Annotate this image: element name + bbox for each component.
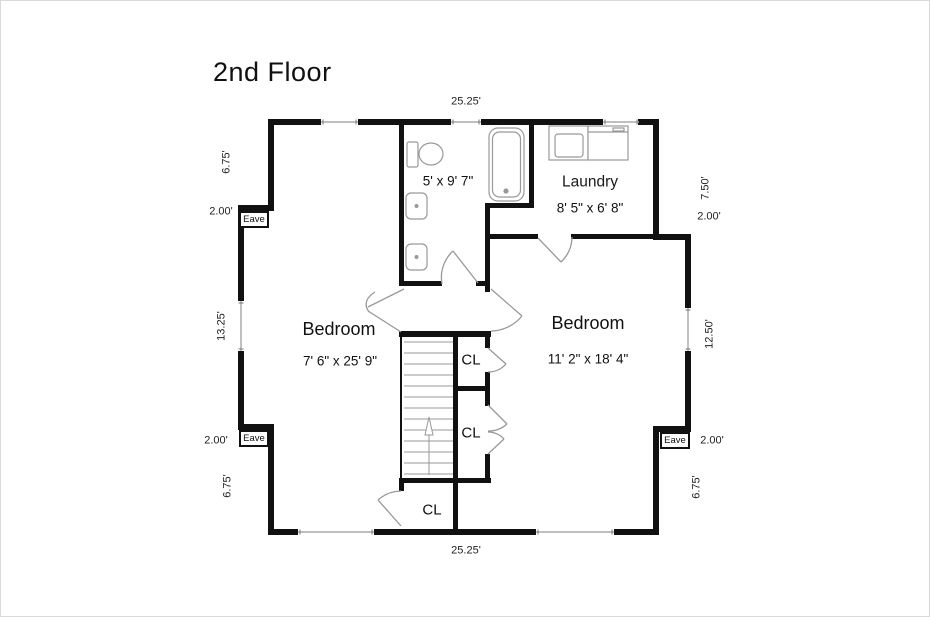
washer-icon <box>549 126 588 160</box>
laundry-dims-label: 8' 5" x 6' 8" <box>557 201 624 215</box>
dim-right-top: 7.50' <box>701 176 712 200</box>
bedroom-left-dims-label: 7' 6" x 25' 9" <box>303 354 377 368</box>
toilet-icon <box>407 142 443 167</box>
dryer-icon <box>588 126 628 160</box>
laundry-name-label: Laundry <box>562 174 618 190</box>
bathtub-icon <box>489 128 524 201</box>
stairs <box>404 342 453 475</box>
dim-left-upper-jog: 2.00' <box>209 207 233 218</box>
eave-tag-bottom-left: Eave <box>239 430 269 447</box>
dim-right-upper-jog: 2.00' <box>697 212 721 223</box>
sink-icon <box>406 193 427 219</box>
eave-tag-top-left: Eave <box>239 211 269 228</box>
bathroom-dims-label: 5' x 9' 7" <box>423 174 473 188</box>
floor-plan-drawing <box>1 1 930 617</box>
bedroom-right-dims-label: 11' 2" x 18' 4" <box>548 352 629 366</box>
dim-top: 25.25' <box>451 97 481 108</box>
closet-top-label: CL <box>461 353 480 368</box>
dim-right-lower-jog: 2.00' <box>700 436 724 447</box>
dim-right-middle: 12.50' <box>705 319 716 349</box>
sink-icon <box>406 244 427 270</box>
stairs-up-arrow-icon <box>425 417 433 475</box>
closet-middle-label: CL <box>461 426 480 441</box>
floor-plan-canvas: 2nd Floor 25.25' 25.25' 6.75' 2.00' 13.2… <box>0 0 930 617</box>
dim-left-middle: 13.25' <box>217 311 228 341</box>
dim-left-top: 6.75' <box>222 150 233 174</box>
fixtures-layer <box>406 126 628 270</box>
page-title: 2nd Floor <box>213 57 332 88</box>
bedroom-left-name-label: Bedroom <box>302 320 375 338</box>
eave-tag-bottom-right: Eave <box>660 432 690 449</box>
dim-right-bottom: 6.75' <box>692 475 703 499</box>
dim-left-bottom: 6.75' <box>223 474 234 498</box>
closet-bottom-label: CL <box>422 503 441 518</box>
bedroom-right-name-label: Bedroom <box>551 314 624 332</box>
dim-bottom: 25.25' <box>451 546 481 557</box>
dim-left-lower-jog: 2.00' <box>204 436 228 447</box>
